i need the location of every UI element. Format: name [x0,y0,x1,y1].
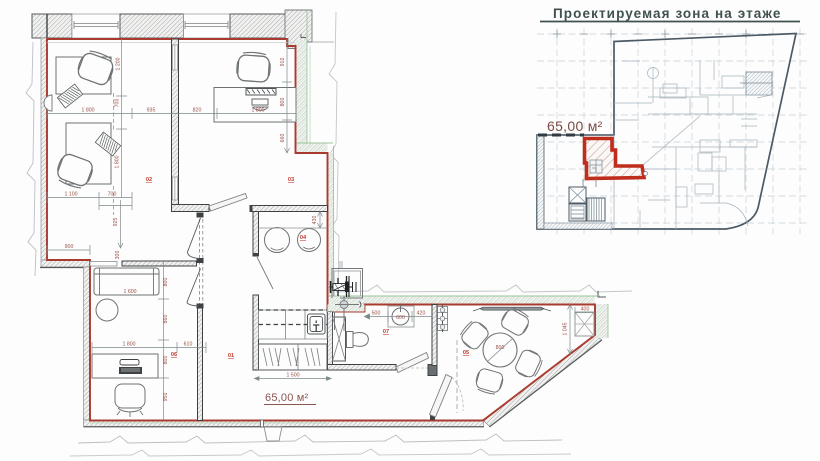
svg-text:1 100: 1 100 [65,192,78,198]
svg-text:600: 600 [396,315,405,321]
svg-text:800: 800 [496,345,505,351]
svg-text:500: 500 [372,311,381,317]
svg-text:800: 800 [163,356,169,365]
svg-text:65,00 м²: 65,00 м² [547,118,603,134]
svg-text:910: 910 [280,58,286,67]
svg-text:400: 400 [581,307,590,313]
svg-text:1 600: 1 600 [124,289,137,295]
svg-text:820: 820 [193,108,202,114]
svg-text:925: 925 [113,218,119,227]
svg-text:1 500: 1 500 [287,373,300,379]
svg-text:950: 950 [163,393,169,402]
svg-text:935: 935 [147,108,156,114]
svg-text:07: 07 [383,329,389,335]
svg-text:01: 01 [228,353,234,359]
svg-text:430: 430 [312,216,318,225]
svg-text:05: 05 [463,350,469,356]
svg-text:420: 420 [417,311,426,317]
svg-text:700: 700 [108,192,117,198]
svg-text:800: 800 [163,278,169,287]
svg-text:1 800: 1 800 [82,108,95,114]
svg-text:65,00 м²: 65,00 м² [265,392,309,404]
svg-text:1 800: 1 800 [252,108,265,114]
svg-text:03: 03 [288,177,294,183]
svg-text:300: 300 [115,251,121,260]
svg-text:06: 06 [171,352,177,358]
svg-text:900: 900 [65,244,74,250]
svg-text:1 800: 1 800 [115,155,121,168]
svg-text:610: 610 [184,342,193,348]
svg-text:02: 02 [146,177,152,183]
svg-text:1 045: 1 045 [563,322,569,335]
svg-text:800: 800 [280,98,286,107]
svg-text:1 800: 1 800 [123,342,136,348]
svg-text:660: 660 [280,134,286,143]
svg-text:04: 04 [300,235,307,241]
svg-text:Проектируемая зона на этаже: Проектируемая зона на этаже [553,6,782,21]
svg-text:860: 860 [163,315,169,324]
svg-text:700: 700 [115,99,121,108]
svg-text:1 200: 1 200 [116,57,122,70]
